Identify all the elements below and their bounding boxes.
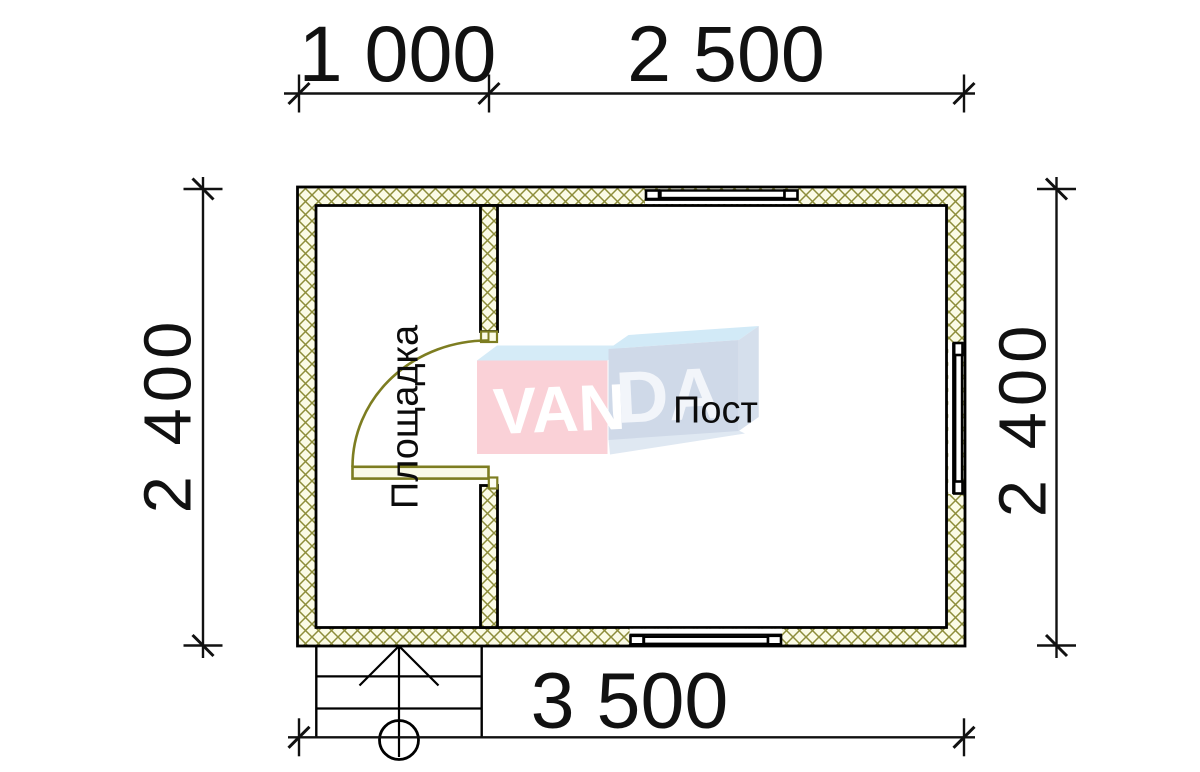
svg-text:2 500: 2 500: [627, 9, 825, 98]
svg-text:2 400: 2 400: [131, 316, 206, 514]
svg-text:2 400: 2 400: [985, 320, 1060, 518]
svg-text:Пост: Пост: [673, 390, 758, 432]
svg-text:1 000: 1 000: [299, 9, 497, 98]
svg-text:Площадка: Площадка: [385, 324, 427, 509]
svg-text:VAN: VAN: [492, 370, 627, 448]
svg-text:3 500: 3 500: [531, 656, 729, 745]
